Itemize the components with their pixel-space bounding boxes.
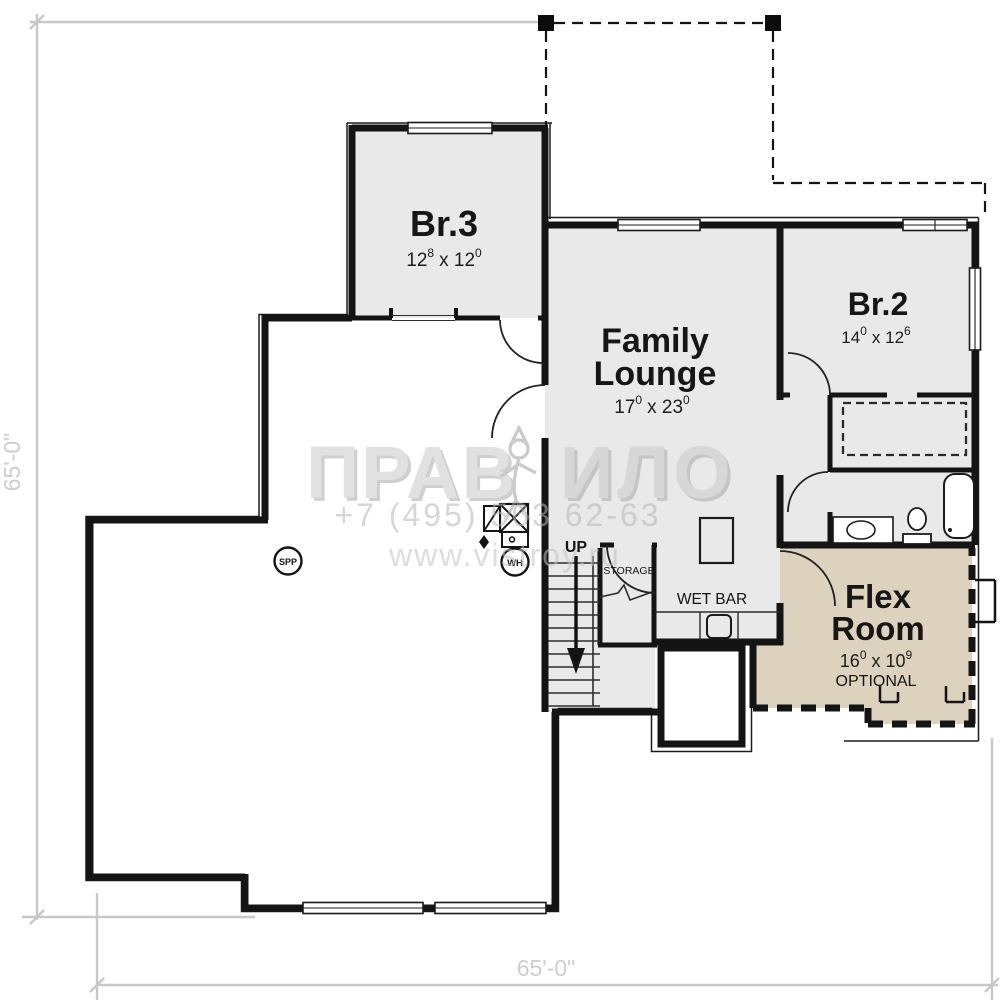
window-well-bumpout	[661, 648, 742, 744]
deck-outline-dashed	[538, 15, 985, 219]
island-counter	[700, 518, 733, 563]
flex-room-dimensions: 160x 109	[840, 648, 913, 671]
flex-room-optional-note: OPTIONAL	[836, 673, 917, 690]
hall-floor	[780, 395, 830, 545]
tub-drain	[948, 528, 952, 532]
bathtub	[944, 474, 974, 538]
sump-pump-label: SPP	[279, 557, 297, 567]
br2-label: Br.2	[848, 286, 908, 322]
deck-post-left	[538, 15, 554, 31]
floor-plan-page: { "plan": { "type": "basement-floor-plan…	[0, 0, 1002, 1000]
toilet-bowl	[908, 508, 926, 530]
watermark-phone: +7 (495) 563 62-63	[334, 497, 661, 533]
family-lounge-label-line2: Lounge	[594, 355, 717, 393]
wet-bar-label: WET BAR	[677, 591, 747, 608]
deck-post-right	[765, 15, 781, 31]
family-lounge-dimensions: 170x 230	[614, 393, 690, 418]
bottom-dimension-text: 65'-0"	[517, 955, 576, 981]
br3-door-arc	[500, 320, 543, 363]
closet-floor	[830, 395, 975, 470]
floor-plan-drawing: 65'-0" 65'-0"	[0, 0, 1002, 1000]
br2-dimensions: 140x 126	[841, 324, 911, 347]
flex-room-label-line2: Room	[831, 610, 925, 647]
br3-label: Br.3	[410, 203, 478, 244]
toilet-tank	[903, 534, 931, 544]
br3-dimensions: 128x 120	[406, 246, 482, 271]
left-dimension-text: 65'-0"	[0, 433, 25, 492]
watermark-url: www.vistroy.ru	[388, 537, 621, 573]
